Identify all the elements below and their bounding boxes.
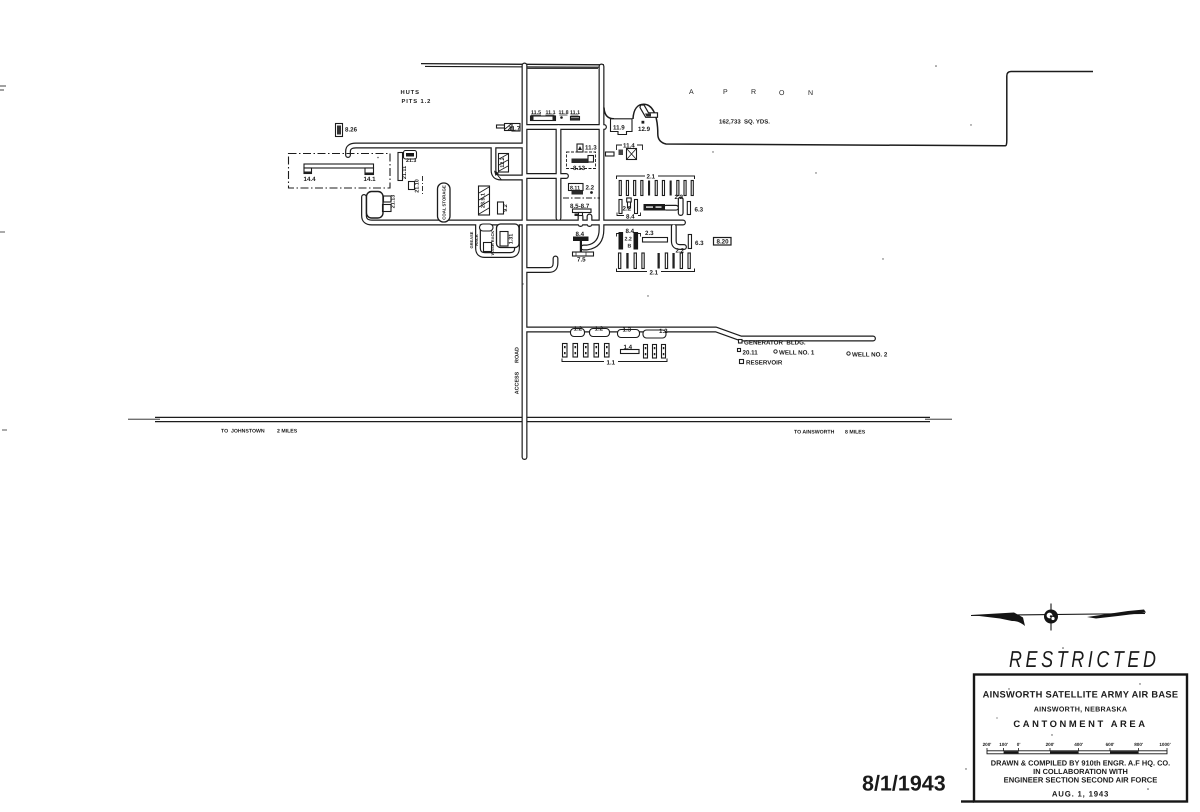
- svg-text:200': 200': [983, 742, 992, 747]
- svg-text:8.4: 8.4: [626, 214, 635, 221]
- svg-text:2.1: 2.1: [650, 270, 659, 277]
- svg-text:21.11: 21.11: [402, 166, 408, 179]
- svg-text:1.2: 1.2: [595, 326, 604, 333]
- svg-text:200': 200': [1046, 742, 1055, 747]
- svg-text:6.3: 6.3: [695, 207, 704, 214]
- svg-text:WASH RACK: WASH RACK: [490, 231, 495, 256]
- svg-text:B: B: [628, 244, 632, 250]
- svg-text:1.3: 1.3: [623, 327, 632, 334]
- svg-text:RACK: RACK: [474, 234, 479, 246]
- svg-text:COAL STORAGE: COAL STORAGE: [442, 185, 447, 220]
- svg-text:2.2: 2.2: [625, 237, 632, 243]
- svg-text:ENGINEER SECTION SECOND AIR FO: ENGINEER SECTION SECOND AIR FORCE: [1004, 776, 1158, 785]
- svg-text:21.13: 21.13: [391, 195, 397, 209]
- svg-text:100': 100': [999, 742, 1008, 747]
- svg-text:7.5: 7.5: [577, 257, 586, 264]
- svg-text:2.2: 2.2: [675, 194, 684, 201]
- svg-text:0': 0': [1017, 742, 1021, 747]
- svg-text:8.4: 8.4: [626, 228, 635, 235]
- svg-text:8/1/1943: 8/1/1943: [862, 772, 946, 796]
- svg-text:14.1: 14.1: [364, 176, 377, 183]
- svg-text:CANTONMENT AREA: CANTONMENT AREA: [1013, 718, 1147, 729]
- svg-text:WELL NO. 2: WELL NO. 2: [852, 352, 888, 359]
- svg-text:1.2: 1.2: [574, 326, 583, 333]
- svg-text:WELL NO. 1: WELL NO. 1: [779, 350, 815, 357]
- svg-text:PITS 1.2: PITS 1.2: [402, 98, 432, 105]
- svg-text:23.9.1: 23.9.1: [481, 193, 487, 208]
- svg-text:ROAD: ROAD: [515, 347, 521, 363]
- svg-text:RESTRICTED: RESTRICTED: [1009, 646, 1160, 672]
- svg-text:8 MILES: 8 MILES: [845, 430, 866, 436]
- svg-text:AUG. 1, 1943: AUG. 1, 1943: [1052, 790, 1109, 799]
- svg-text:14.4: 14.4: [304, 176, 317, 183]
- svg-text:21.10: 21.10: [415, 179, 421, 193]
- svg-text:1.31: 1.31: [509, 234, 515, 245]
- svg-text:21.3: 21.3: [406, 158, 416, 164]
- svg-text:2 MILES: 2 MILES: [277, 429, 298, 435]
- svg-text:A: A: [689, 89, 694, 96]
- svg-text:TO AINSWORTH: TO AINSWORTH: [794, 430, 835, 436]
- svg-text:RESERVOIR: RESERVOIR: [746, 360, 783, 367]
- svg-text:1000': 1000': [1159, 742, 1170, 747]
- svg-text:8.20: 8.20: [717, 239, 730, 246]
- svg-text:2.1: 2.1: [647, 174, 656, 181]
- svg-text:800': 800': [1134, 742, 1143, 747]
- svg-text:11.7: 11.7: [509, 126, 521, 133]
- svg-text:11.9: 11.9: [613, 125, 625, 132]
- svg-text:9.2: 9.2: [503, 204, 509, 212]
- svg-text:AINSWORTH, NEBRASKA: AINSWORTH, NEBRASKA: [1034, 706, 1128, 714]
- svg-text:162,733 SQ. YDS.: 162,733 SQ. YDS.: [719, 119, 770, 126]
- svg-text:N: N: [808, 90, 813, 97]
- svg-text:2.2: 2.2: [586, 185, 595, 192]
- svg-text:TO JOHNSTOWN: TO JOHNSTOWN: [221, 429, 265, 435]
- svg-text:O: O: [779, 90, 785, 97]
- svg-text:8.26: 8.26: [345, 127, 358, 134]
- svg-text:HUTS: HUTS: [401, 89, 420, 96]
- svg-text:1.2: 1.2: [659, 328, 668, 335]
- svg-text:GENERATOR BLDG.: GENERATOR BLDG.: [744, 340, 806, 347]
- svg-text:ACCESS: ACCESS: [515, 371, 521, 394]
- svg-text:20.11: 20.11: [743, 350, 759, 357]
- svg-text:600': 600': [1106, 742, 1115, 747]
- svg-text:400': 400': [1074, 742, 1083, 747]
- svg-text:R: R: [751, 89, 756, 96]
- svg-text:8.13: 8.13: [573, 165, 586, 172]
- svg-text:AINSWORTH SATELLITE ARMY AIR B: AINSWORTH SATELLITE ARMY AIR BASE: [983, 690, 1179, 700]
- svg-text:11.3: 11.3: [585, 145, 597, 152]
- svg-text:P: P: [723, 89, 728, 96]
- svg-text:6.3: 6.3: [695, 240, 704, 247]
- svg-text:2.2: 2.2: [623, 206, 632, 213]
- svg-text:2.3: 2.3: [645, 230, 654, 237]
- svg-text:1.1: 1.1: [607, 360, 616, 367]
- svg-text:12.2: 12.2: [500, 157, 506, 168]
- svg-text:12.9: 12.9: [638, 126, 651, 133]
